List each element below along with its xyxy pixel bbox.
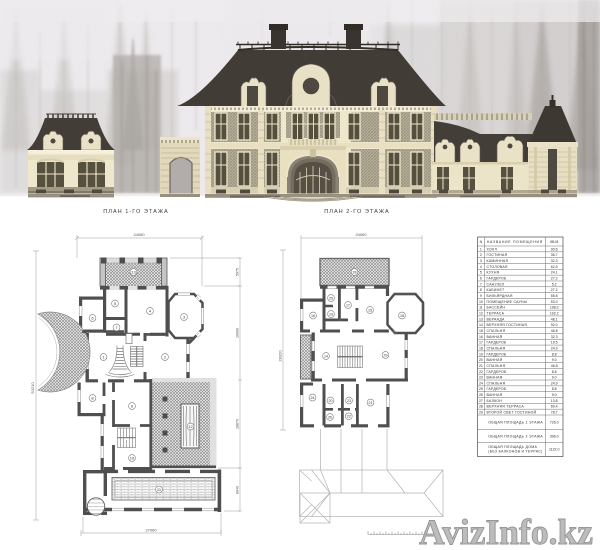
svg-text:16: 16 [311,314,315,318]
svg-text:1122.0: 1122.0 [549,448,559,452]
svg-text:21: 21 [479,364,483,368]
svg-text:15: 15 [479,329,483,333]
svg-text:29: 29 [384,353,388,357]
svg-text:36.7: 36.7 [551,253,558,257]
svg-text:32.3: 32.3 [551,335,558,339]
svg-text:8.8: 8.8 [552,370,557,374]
svg-text:25: 25 [329,296,333,300]
svg-text:ВЕРХНЯЯ ТЕРРАСА: ВЕРХНЯЯ ТЕРРАСА [487,405,525,409]
svg-text:27060: 27060 [145,528,157,533]
svg-text:12: 12 [188,424,193,429]
svg-text:ВАННАЯ: ВАННАЯ [487,358,503,362]
svg-text:1: 1 [480,247,482,251]
svg-text:18: 18 [479,346,483,350]
svg-text:ОБЩАЯ ПЛОЩАДЬ 1 ЭТАЖА: ОБЩАЯ ПЛОЩАДЬ 1 ЭТАЖА [488,421,543,425]
svg-text:8.8: 8.8 [552,387,557,391]
svg-text:726.0: 726.0 [550,421,559,425]
svg-text:ТЕРРАСА: ТЕРРАСА [487,311,505,315]
svg-text:ВЕРХНЯЯ ГОСТИНАЯ: ВЕРХНЯЯ ГОСТИНАЯ [487,323,528,327]
svg-text:55.8: 55.8 [551,294,558,298]
svg-text:24060: 24060 [355,232,367,237]
svg-text:КАБИНЕТ: КАБИНЕТ [487,288,506,292]
svg-text:27: 27 [479,399,483,403]
svg-text:AvizInfo.kz: AvizInfo.kz [419,512,593,550]
svg-text:92.0: 92.0 [551,323,558,327]
svg-text:22: 22 [347,415,351,419]
svg-text:СПАЛЬНЯ: СПАЛЬНЯ [487,346,506,350]
svg-text:СТОЛОВАЯ: СТОЛОВАЯ [487,265,508,269]
svg-text:ГАРДЕРОБ: ГАРДЕРОБ [487,387,508,391]
svg-text:ГАРДЕРОБ: ГАРДЕРОБ [487,277,508,281]
svg-text:ГАРДЕРОБ: ГАРДЕРОБ [487,370,508,374]
svg-text:4: 4 [480,265,482,269]
svg-text:17: 17 [346,303,350,307]
svg-text:КУХНЯ: КУХНЯ [487,271,500,275]
svg-text:10: 10 [479,300,483,304]
svg-text:ВТОРОЙ СВЕТ ГОСТИНОЙ: ВТОРОЙ СВЕТ ГОСТИНОЙ [487,411,537,415]
svg-text:ХОЛЛ: ХОЛЛ [487,247,498,251]
svg-text:48.1: 48.1 [551,317,558,321]
svg-text:ПОМЕЩЕНИЕ САУНЫ: ПОМЕЩЕНИЕ САУНЫ [487,300,528,304]
svg-text:ОБЩАЯ ПЛОЩАДЬ ДОМА: ОБЩАЯ ПЛОЩАДЬ ДОМА [488,445,537,449]
svg-text:19: 19 [329,312,333,316]
svg-text:24: 24 [479,381,483,385]
svg-text:ОБЩАЯ ПЛОЩАДЬ 2 ЭТАЖА: ОБЩАЯ ПЛОЩАДЬ 2 ЭТАЖА [488,434,543,438]
svg-text:ГАРДЕРОБ: ГАРДЕРОБ [487,341,508,345]
svg-text:11: 11 [479,306,483,310]
svg-text:27.2: 27.2 [551,277,558,281]
svg-text:23: 23 [347,399,351,403]
svg-text:9.0: 9.0 [552,376,557,380]
svg-text:КАМИННАЯ: КАМИННАЯ [487,259,509,263]
svg-text:13: 13 [479,317,483,321]
svg-text:90.6: 90.6 [551,247,558,251]
svg-text:САНУЗЕЛ: САНУЗЕЛ [487,282,505,286]
svg-text:18870: 18870 [236,419,240,429]
svg-text:62.5: 62.5 [551,265,558,269]
svg-text:22: 22 [479,370,483,374]
svg-text:ПЛАН 1-ГО ЭТАЖА: ПЛАН 1-ГО ЭТАЖА [103,209,169,215]
svg-text:ГАРДЕРОБ: ГАРДЕРОБ [487,352,508,356]
svg-text:24: 24 [311,396,315,400]
svg-text:ВАННАЯ: ВАННАЯ [487,376,503,380]
svg-text:28: 28 [353,270,357,274]
svg-text:3: 3 [480,259,482,263]
svg-text:78.7: 78.7 [551,411,558,415]
svg-text:ВАННАЯ: ВАННАЯ [487,335,503,339]
svg-text:7: 7 [480,282,482,286]
svg-text:396.0: 396.0 [550,434,559,438]
svg-text:24060: 24060 [133,232,145,237]
svg-text:26: 26 [328,415,332,419]
svg-text:24.9: 24.9 [551,381,558,385]
svg-text:21: 21 [369,401,373,405]
svg-text:12: 12 [479,311,483,315]
svg-text:(БЕЗ БАЛКОНОВ И ТЕРРАС): (БЕЗ БАЛКОНОВ И ТЕРРАС) [488,449,542,453]
svg-text:53.0: 53.0 [551,300,558,304]
svg-text:6: 6 [480,277,482,281]
svg-text:5975: 5975 [236,268,240,276]
svg-text:СПАЛЬНЯ: СПАЛЬНЯ [487,329,506,333]
svg-text:НАЗВАНИЕ ПОМЕЩЕНИЯ: НАЗВАНИЕ ПОМЕЩЕНИЯ [487,240,543,244]
svg-text:16: 16 [479,335,483,339]
svg-text:192.2: 192.2 [550,311,559,315]
svg-text:5.2: 5.2 [552,282,557,286]
svg-text:19.5: 19.5 [551,341,558,345]
svg-text:9.0: 9.0 [552,393,557,397]
svg-text:28320: 28320 [278,350,283,362]
svg-text:БИЛЬЯРДНАЯ: БИЛЬЯРДНАЯ [487,294,513,298]
svg-text:19: 19 [479,352,483,356]
svg-text:29: 29 [479,411,483,415]
svg-text:10: 10 [130,456,135,461]
svg-text:198.2: 198.2 [550,306,559,310]
svg-text:18: 18 [400,314,404,318]
svg-text:9: 9 [480,294,482,298]
svg-text:14: 14 [324,354,328,358]
svg-text:N: N [480,240,483,244]
svg-text:24.9: 24.9 [551,346,558,350]
svg-text:14: 14 [479,323,483,327]
svg-text:8040: 8040 [236,486,240,494]
svg-text:БАССЕЙН: БАССЕЙН [487,306,506,310]
svg-text:9.0: 9.0 [552,358,557,362]
svg-text:24.1: 24.1 [551,271,558,275]
svg-text:КВ.М: КВ.М [550,240,558,244]
svg-text:5: 5 [480,271,482,275]
svg-text:27.2: 27.2 [551,288,558,292]
svg-text:ВЕРАНДА: ВЕРАНДА [487,317,506,321]
svg-text:50210: 50210 [30,382,35,394]
svg-text:46.8: 46.8 [551,329,558,333]
svg-text:69.4: 69.4 [551,405,558,409]
svg-text:ВАННАЯ: ВАННАЯ [487,393,503,397]
svg-text:ГОСТИНАЯ: ГОСТИНАЯ [487,253,508,257]
svg-text:2: 2 [480,253,482,257]
svg-text:8.8: 8.8 [552,352,557,356]
svg-text:13: 13 [131,270,136,275]
svg-text:20: 20 [479,358,483,362]
svg-text:СПАЛЬНЯ: СПАЛЬНЯ [487,381,506,385]
svg-text:8: 8 [480,288,482,292]
svg-text:25: 25 [479,387,483,391]
svg-text:28: 28 [479,405,483,409]
svg-text:БАЛКОН: БАЛКОН [487,399,503,403]
svg-text:ПЛАН 2-ГО ЭТАЖА: ПЛАН 2-ГО ЭТАЖА [324,209,390,215]
svg-text:26: 26 [479,393,483,397]
svg-text:46.8: 46.8 [551,364,558,368]
svg-text:17: 17 [479,341,483,345]
svg-text:16060: 16060 [236,328,240,338]
svg-text:23: 23 [479,376,483,380]
svg-text:20: 20 [329,399,333,403]
svg-text:15: 15 [368,308,372,312]
svg-text:13.8: 13.8 [551,399,558,403]
svg-text:СПАЛЬНЯ: СПАЛЬНЯ [487,364,506,368]
svg-text:32.3: 32.3 [551,259,558,263]
